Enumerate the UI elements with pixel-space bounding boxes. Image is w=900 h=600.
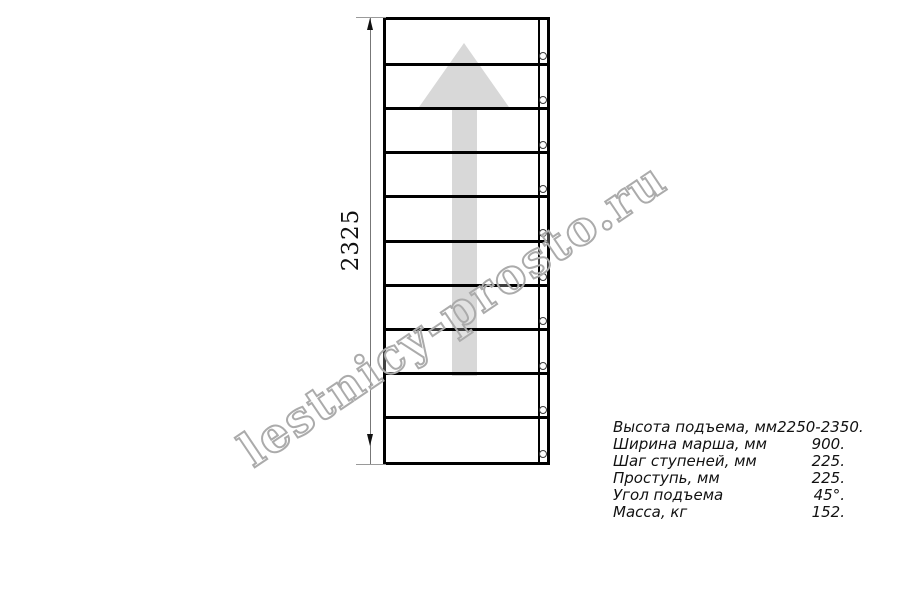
specs-table: Высота подъема, мм 2250-2350. Ширина мар…: [613, 419, 845, 521]
spec-label: Проступь, мм: [613, 470, 720, 487]
dimension-label: 2325: [338, 209, 364, 272]
step-edge-line: [386, 107, 547, 110]
step-edge-line: [386, 195, 547, 198]
spec-label: Ширина марша, мм: [613, 436, 767, 453]
step-edge-line: [386, 63, 547, 66]
step-edge-line: [386, 416, 547, 419]
bolt-hole-icon: [539, 96, 547, 104]
dimension-arrow-down-icon: [367, 434, 373, 446]
spec-row-width: Ширина марша, мм 900.: [613, 436, 845, 453]
spec-row-height: Высота подъема, мм 2250-2350.: [613, 419, 845, 436]
bolt-hole-icon: [539, 141, 547, 149]
step-edge-line: [386, 151, 547, 154]
bolt-hole-icon: [539, 450, 547, 458]
spec-value: 225.: [812, 453, 845, 470]
spec-value: 900.: [812, 436, 845, 453]
spec-value: 152.: [812, 504, 845, 521]
spec-value: 2250-2350.: [777, 419, 864, 436]
spec-row-angle: Угол подъема 45°.: [613, 487, 845, 504]
bolt-hole-icon: [539, 52, 547, 60]
extension-line-bottom: [356, 464, 386, 465]
bolt-hole-icon: [539, 185, 547, 193]
spec-value: 45°.: [814, 487, 845, 504]
spec-label: Шаг ступеней, мм: [613, 453, 757, 470]
bolt-hole-icon: [539, 317, 547, 325]
spec-row-mass: Масса, кг 152.: [613, 504, 845, 521]
spec-label: Масса, кг: [613, 504, 687, 521]
stair-drawing-page: 2325 lestnicy-prosto.ru Высота подъема, …: [0, 0, 900, 600]
spec-row-step-pitch: Шаг ступеней, мм 225.: [613, 453, 845, 470]
spec-row-tread: Проступь, мм 225.: [613, 470, 845, 487]
spec-label: Угол подъема: [613, 487, 723, 504]
dimension-arrow-up-icon: [367, 18, 373, 30]
spec-value: 225.: [812, 470, 845, 487]
bolt-hole-icon: [539, 406, 547, 414]
spec-label: Высота подъема, мм: [613, 419, 777, 436]
bolt-hole-icon: [539, 362, 547, 370]
